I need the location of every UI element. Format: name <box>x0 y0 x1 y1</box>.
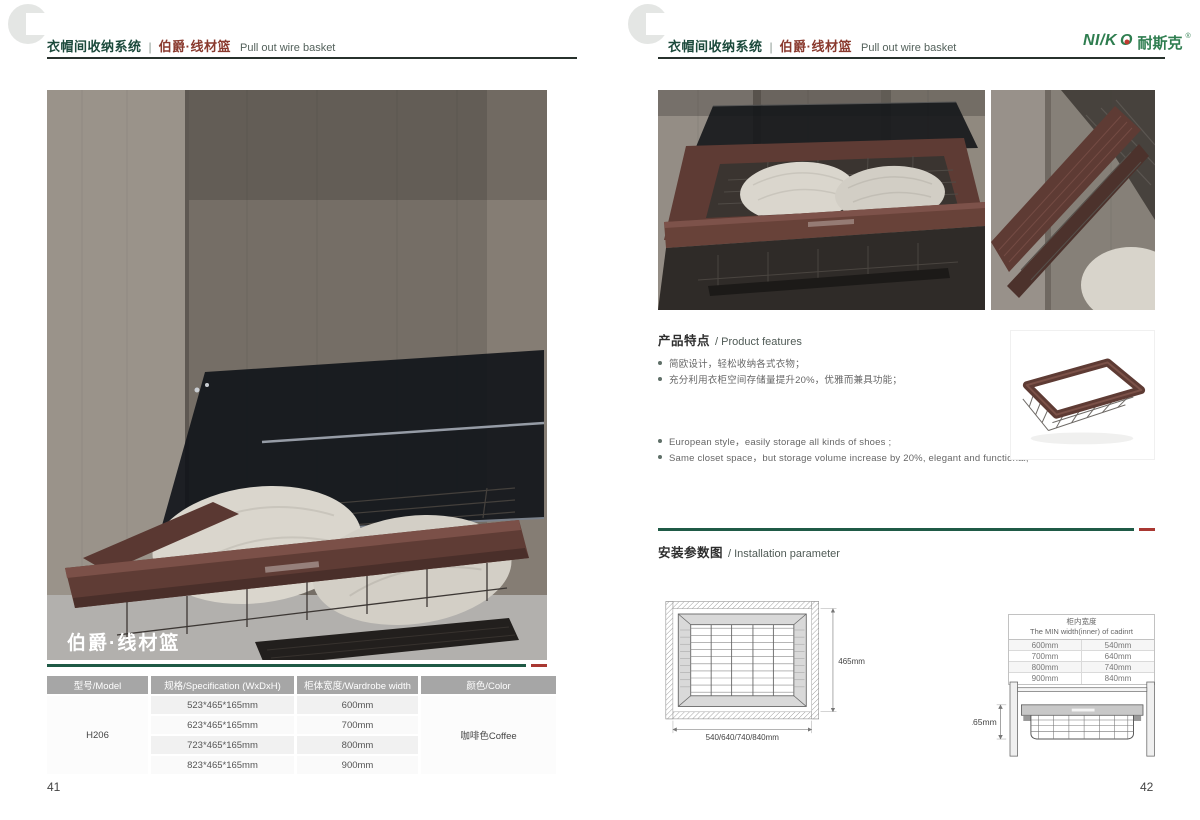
divider-red-bar <box>531 664 547 667</box>
table-cell: 600mm <box>1009 640 1082 650</box>
side-view-diagram: 165mm <box>972 680 1162 761</box>
logo-cn: 耐斯克 <box>1137 32 1182 53</box>
table-cell: 540mm <box>1082 640 1154 650</box>
header-separator: | <box>770 40 773 54</box>
table-row: 600mm 540mm <box>1009 640 1154 651</box>
model-cell: H206 <box>47 696 148 774</box>
feature-text: 简欧设计，轻松收纳各式衣物； <box>669 356 805 370</box>
col-header-width: 柜体宽度/Wardrobe width <box>297 676 418 694</box>
table-cell: 740mm <box>1082 662 1154 672</box>
c-watermark-icon <box>8 4 48 44</box>
bullet-icon <box>658 439 662 443</box>
table-row: 700mm 640mm <box>1009 651 1154 662</box>
divider-green-bar <box>658 528 1134 531</box>
photo-caption: 伯爵·线材篮 <box>67 628 180 655</box>
logo-mark: NI/K <box>1083 32 1117 50</box>
min-width-table-title: 柜内宽度 The MIN width(inner) of cadinrt <box>1009 615 1154 640</box>
depth-dimension-label: 465mm <box>838 657 865 666</box>
installation-title-cn: 安装参数图 <box>658 542 723 561</box>
width-cell: 700mm <box>297 716 418 734</box>
width-cell: 600mm <box>297 696 418 714</box>
c-watermark-icon <box>628 4 668 44</box>
table-cell: 640mm <box>1082 651 1154 661</box>
width-dimension-label: 540/640/740/840mm <box>706 733 780 742</box>
section-divider <box>47 664 547 667</box>
min-width-title-en: The MIN width(inner) of cadinrt <box>1011 627 1152 637</box>
spec-cell: 823*465*165mm <box>151 756 294 774</box>
logo-mark-o: O <box>1120 32 1132 50</box>
wardrobe-photo-main: 伯爵·线材篮 <box>47 90 547 660</box>
col-header-model: 型号/Model <box>47 676 148 694</box>
color-cell: 咖啡色Coffee <box>421 696 556 774</box>
min-width-title-cn: 柜内宽度 <box>1011 617 1152 627</box>
system-title: 衣帽间收纳系统 <box>668 36 763 55</box>
section-divider <box>658 528 1155 531</box>
page-number-right: 42 <box>1140 780 1153 794</box>
header-rule <box>658 57 1165 59</box>
features-title-en: / Product features <box>715 336 802 348</box>
product-name: 伯爵·线材篮 <box>159 36 231 55</box>
brand-logo: NI/K O 耐斯克 ® <box>1083 32 1191 53</box>
features-title-cn: 产品特点 <box>658 330 710 349</box>
header-separator: | <box>149 40 152 54</box>
width-cell: 800mm <box>297 736 418 754</box>
feature-bullet: European style，easily storage all kinds … <box>658 434 891 448</box>
product-name-en: Pull out wire basket <box>861 42 956 54</box>
top-view-diagram: 465mm 540/640/740/840mm <box>662 598 867 742</box>
divider-red-bar <box>1139 528 1155 531</box>
header-rule <box>47 57 577 59</box>
bullet-icon <box>658 377 662 381</box>
feature-text: Same closet space，but storage volume inc… <box>669 450 1029 464</box>
feature-text: European style，easily storage all kinds … <box>669 434 891 448</box>
bullet-icon <box>658 361 662 365</box>
installation-title: 安装参数图 / Installation parameter <box>658 542 840 561</box>
table-row: 800mm 740mm <box>1009 662 1154 673</box>
col-header-spec: 规格/Specification (WxDxH) <box>151 676 294 694</box>
spec-table: 型号/Model 规格/Specification (WxDxH) 柜体宽度/W… <box>47 676 556 774</box>
bullet-icon <box>658 455 662 459</box>
product-render <box>1010 330 1155 460</box>
wire-basket-render <box>1011 335 1154 455</box>
registered-mark: ® <box>1185 33 1190 40</box>
basket-photo-illustration <box>658 90 985 310</box>
table-cell: 700mm <box>1009 651 1082 661</box>
col-header-color: 颜色/Color <box>421 676 556 694</box>
spec-cell: 623*465*165mm <box>151 716 294 734</box>
basket-detail-illustration <box>991 90 1155 310</box>
page-number-left: 41 <box>47 780 60 794</box>
page-right: 衣帽间收纳系统 | 伯爵·线材篮 Pull out wire basket NI… <box>600 0 1200 820</box>
basket-photo-front <box>658 90 985 310</box>
spec-cell: 523*465*165mm <box>151 696 294 714</box>
divider-green-bar <box>47 664 526 667</box>
basket-photo-detail <box>991 90 1155 310</box>
table-cell: 800mm <box>1009 662 1082 672</box>
page-left: 衣帽间收纳系统 | 伯爵·线材篮 Pull out wire basket <box>0 0 600 820</box>
feature-bullet: Same closet space，but storage volume inc… <box>658 450 1029 464</box>
features-title: 产品特点 / Product features <box>658 330 802 349</box>
page-header: 衣帽间收纳系统 | 伯爵·线材篮 Pull out wire basket <box>668 36 956 55</box>
installation-title-en: / Installation parameter <box>728 548 840 560</box>
catalog-spread: 衣帽间收纳系统 | 伯爵·线材篮 Pull out wire basket <box>0 0 1200 820</box>
spec-cell: 723*465*165mm <box>151 736 294 754</box>
feature-text: 充分利用衣柜空间存储量提升20%，优雅而兼具功能； <box>669 372 902 386</box>
product-name: 伯爵·线材篮 <box>780 36 852 55</box>
feature-bullet: 充分利用衣柜空间存储量提升20%，优雅而兼具功能； <box>658 372 902 386</box>
min-width-table: 柜内宽度 The MIN width(inner) of cadinrt 600… <box>1008 614 1155 685</box>
wardrobe-photo-illustration <box>47 90 547 660</box>
page-header: 衣帽间收纳系统 | 伯爵·线材篮 Pull out wire basket <box>47 36 335 55</box>
system-title: 衣帽间收纳系统 <box>47 36 142 55</box>
feature-bullet: 简欧设计，轻松收纳各式衣物； <box>658 356 805 370</box>
height-dimension-label: 165mm <box>972 717 997 727</box>
width-cell: 900mm <box>297 756 418 774</box>
product-name-en: Pull out wire basket <box>240 42 335 54</box>
